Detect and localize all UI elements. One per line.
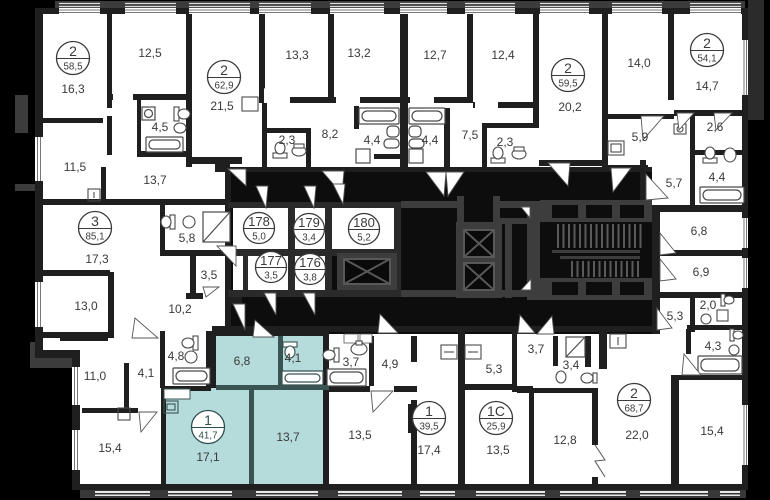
svg-text:3,7: 3,7 [343, 355, 360, 369]
svg-text:17,3: 17,3 [85, 252, 109, 266]
svg-text:178: 178 [248, 214, 270, 229]
svg-text:85,1: 85,1 [85, 232, 104, 243]
svg-text:4,4: 4,4 [364, 133, 381, 147]
svg-text:1: 1 [425, 403, 433, 419]
svg-text:13,5: 13,5 [486, 443, 510, 457]
svg-text:4,9: 4,9 [382, 357, 399, 371]
svg-text:5,0: 5,0 [252, 232, 266, 243]
svg-text:5,3: 5,3 [486, 362, 503, 376]
svg-text:12,5: 12,5 [138, 46, 162, 60]
svg-text:15,4: 15,4 [98, 441, 122, 455]
svg-text:2: 2 [564, 60, 572, 76]
svg-text:11,5: 11,5 [64, 160, 87, 174]
svg-text:176: 176 [299, 255, 321, 270]
svg-text:6,8: 6,8 [691, 224, 708, 238]
svg-text:177: 177 [260, 253, 282, 268]
svg-text:6,8: 6,8 [234, 354, 251, 368]
svg-text:13,0: 13,0 [74, 299, 98, 313]
svg-text:4,5: 4,5 [152, 120, 169, 134]
svg-text:17,1: 17,1 [196, 450, 220, 464]
svg-text:22,0: 22,0 [625, 428, 649, 442]
svg-text:3,4: 3,4 [563, 358, 580, 372]
svg-text:5,3: 5,3 [667, 309, 684, 323]
svg-text:179: 179 [298, 215, 320, 230]
svg-text:21,5: 21,5 [210, 99, 234, 113]
svg-text:2,0: 2,0 [700, 298, 717, 312]
svg-text:1: 1 [204, 412, 212, 428]
svg-text:8,2: 8,2 [322, 127, 339, 141]
svg-text:5,8: 5,8 [179, 231, 196, 245]
svg-text:13,5: 13,5 [348, 428, 372, 442]
svg-text:62,9: 62,9 [214, 81, 233, 92]
svg-text:2,3: 2,3 [497, 135, 514, 149]
svg-text:20,2: 20,2 [558, 100, 582, 114]
svg-text:2: 2 [703, 35, 711, 51]
svg-text:5,9: 5,9 [632, 130, 649, 144]
svg-text:58,5: 58,5 [63, 62, 83, 73]
svg-text:4,1: 4,1 [285, 351, 302, 365]
svg-text:12,8: 12,8 [553, 433, 577, 447]
svg-text:11,0: 11,0 [84, 369, 107, 383]
svg-text:2: 2 [69, 43, 77, 59]
svg-text:3: 3 [91, 213, 99, 229]
svg-text:4,8: 4,8 [168, 349, 185, 363]
svg-text:4,4: 4,4 [709, 170, 726, 184]
svg-text:1C: 1C [487, 403, 505, 419]
svg-text:14,0: 14,0 [627, 56, 651, 70]
svg-text:14,7: 14,7 [695, 79, 719, 93]
svg-text:16,3: 16,3 [61, 82, 85, 96]
svg-text:3,8: 3,8 [303, 273, 317, 284]
svg-text:10,2: 10,2 [168, 302, 192, 316]
svg-text:4,3: 4,3 [705, 339, 722, 353]
svg-text:3,5: 3,5 [264, 271, 278, 282]
svg-text:68,7: 68,7 [624, 404, 643, 415]
svg-text:41,7: 41,7 [198, 431, 217, 442]
svg-text:59,5: 59,5 [558, 79, 578, 90]
svg-text:4,4: 4,4 [422, 133, 439, 147]
svg-text:3,5: 3,5 [201, 268, 218, 282]
svg-text:54,1: 54,1 [697, 54, 716, 65]
svg-text:13,2: 13,2 [347, 46, 371, 60]
svg-text:25,9: 25,9 [486, 422, 505, 433]
svg-text:13,7: 13,7 [143, 173, 167, 187]
svg-text:2,3: 2,3 [279, 133, 296, 147]
svg-text:4,1: 4,1 [138, 366, 155, 380]
svg-text:12,4: 12,4 [491, 48, 515, 62]
svg-text:7,5: 7,5 [462, 128, 479, 142]
svg-text:2: 2 [630, 385, 638, 401]
svg-text:13,7: 13,7 [276, 430, 300, 444]
svg-text:39,5: 39,5 [419, 422, 439, 433]
svg-text:6,9: 6,9 [693, 265, 710, 279]
svg-text:3,4: 3,4 [302, 233, 316, 244]
svg-text:2,6: 2,6 [707, 120, 724, 134]
svg-text:3,7: 3,7 [528, 342, 545, 356]
svg-text:2: 2 [220, 62, 228, 78]
svg-text:17,4: 17,4 [417, 443, 441, 457]
svg-text:5,7: 5,7 [666, 176, 683, 190]
svg-text:180: 180 [353, 215, 375, 230]
svg-text:5,2: 5,2 [357, 233, 371, 244]
svg-text:13,3: 13,3 [285, 48, 309, 62]
svg-text:15,4: 15,4 [700, 424, 724, 438]
svg-text:12,7: 12,7 [423, 48, 447, 62]
